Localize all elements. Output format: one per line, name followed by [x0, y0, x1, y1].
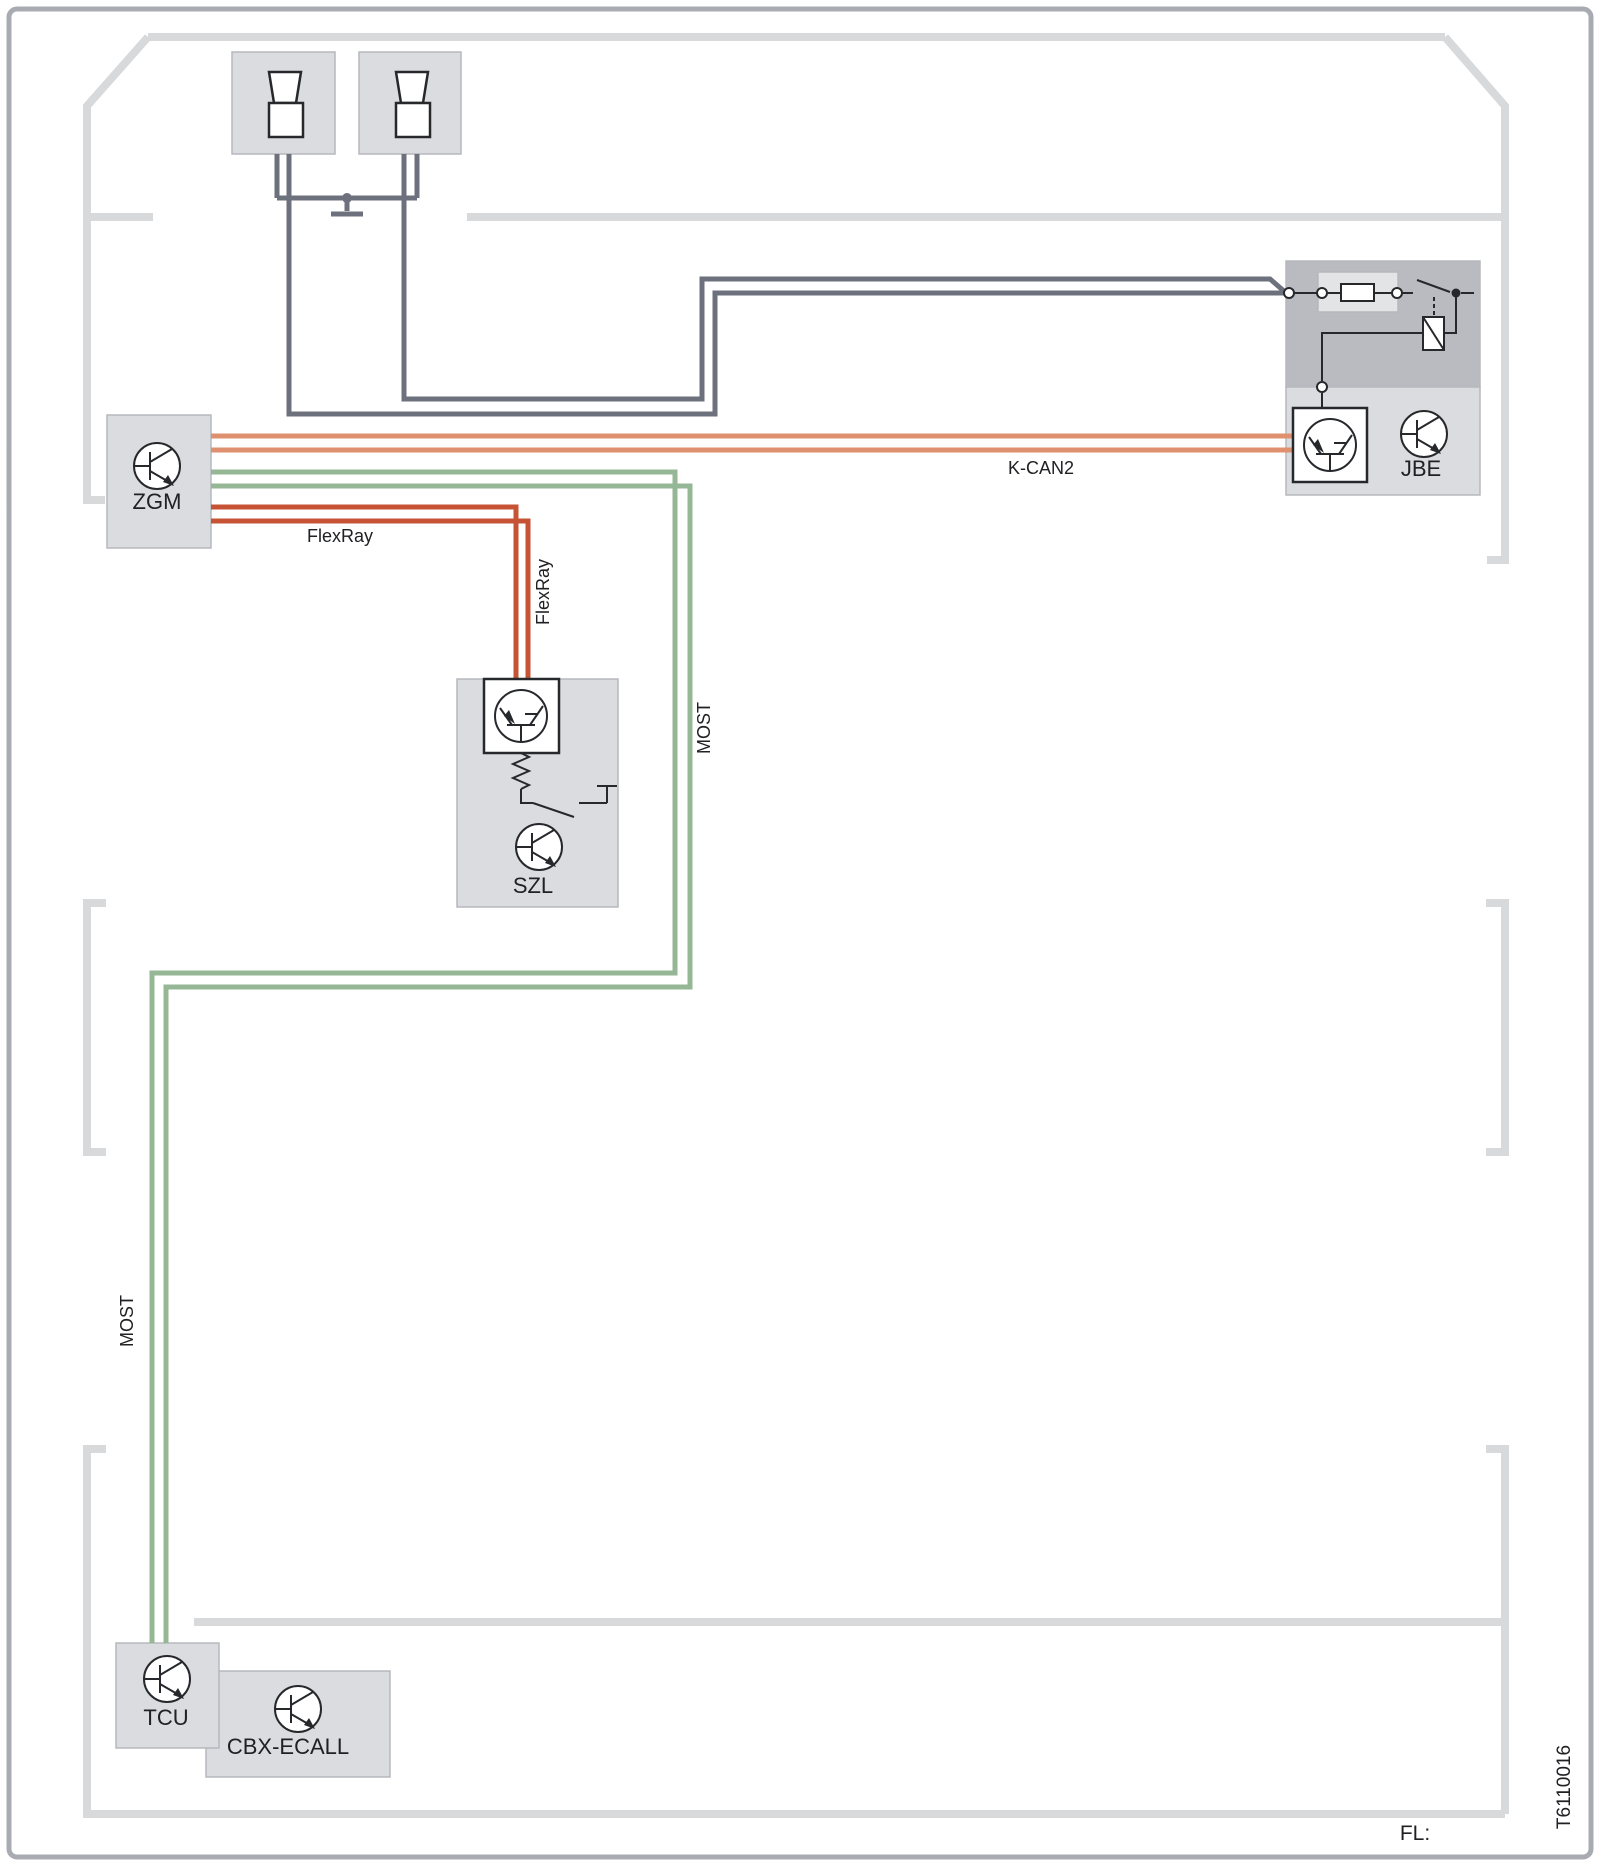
control-unit-transistor-icon [1401, 411, 1447, 457]
footer-fl-label: FL: [1400, 1822, 1430, 1845]
most-wire-2 [166, 486, 690, 1643]
horn-icon [269, 72, 301, 103]
horn-left [269, 72, 303, 137]
horn-right-supply-wire [404, 154, 1285, 399]
connector-terminal-icon [1317, 382, 1327, 392]
most-wire-1 [152, 472, 675, 1643]
tcu-label: TCU [143, 1705, 188, 1730]
most-bus-label-vertical: MOST [117, 1295, 137, 1347]
control-unit-transistor-icon [275, 1686, 321, 1732]
wiring-diagram-page: ZGM JBE SZL TCU CBX-ECALL K-CAN2 FlexRay… [0, 0, 1600, 1866]
jbe-label: JBE [1401, 456, 1441, 481]
flexray-bus-label-vertical: FlexRay [533, 559, 553, 625]
horn-icon [396, 72, 428, 103]
control-unit-transistor-icon [134, 443, 180, 489]
car-outline-rear-right [1486, 1449, 1505, 1814]
connector-terminal-icon [1392, 288, 1402, 298]
drawing-number: T6110016 [1554, 1745, 1575, 1829]
ground-junction-dot [342, 193, 352, 203]
wiring-diagram: ZGM JBE SZL TCU CBX-ECALL K-CAN2 FlexRay… [0, 0, 1600, 1866]
connector-terminal-icon [1284, 288, 1294, 298]
most-bus [152, 472, 690, 1643]
bus-interface-icon [1304, 419, 1356, 471]
car-outline-left-door-seam [87, 903, 106, 1152]
fuse-icon [1341, 284, 1374, 301]
horn-body [396, 103, 430, 137]
cbx-ecall-label: CBX-ECALL [227, 1734, 349, 1759]
control-unit-transistor-icon [516, 824, 562, 870]
horn-wiring [277, 154, 1285, 414]
flexray-bus-label: FlexRay [307, 526, 373, 546]
kcan2-bus-label: K-CAN2 [1008, 458, 1074, 478]
most-bus-label-vertical: MOST [694, 702, 714, 754]
kcan2-bus [211, 436, 1293, 450]
car-outline-right-door-seam [1486, 903, 1505, 1152]
horn-right [396, 72, 430, 137]
horn-left-supply-wire [289, 154, 1284, 414]
horn-body [269, 103, 303, 137]
zgm-label: ZGM [133, 489, 182, 514]
horn-ground-bus-wire [277, 154, 417, 198]
junction-dot [1452, 289, 1461, 298]
connector-terminal-icon [1317, 288, 1327, 298]
bus-interface-icon [495, 690, 547, 742]
szl-label: SZL [513, 873, 553, 898]
control-unit-transistor-icon [144, 1656, 190, 1702]
